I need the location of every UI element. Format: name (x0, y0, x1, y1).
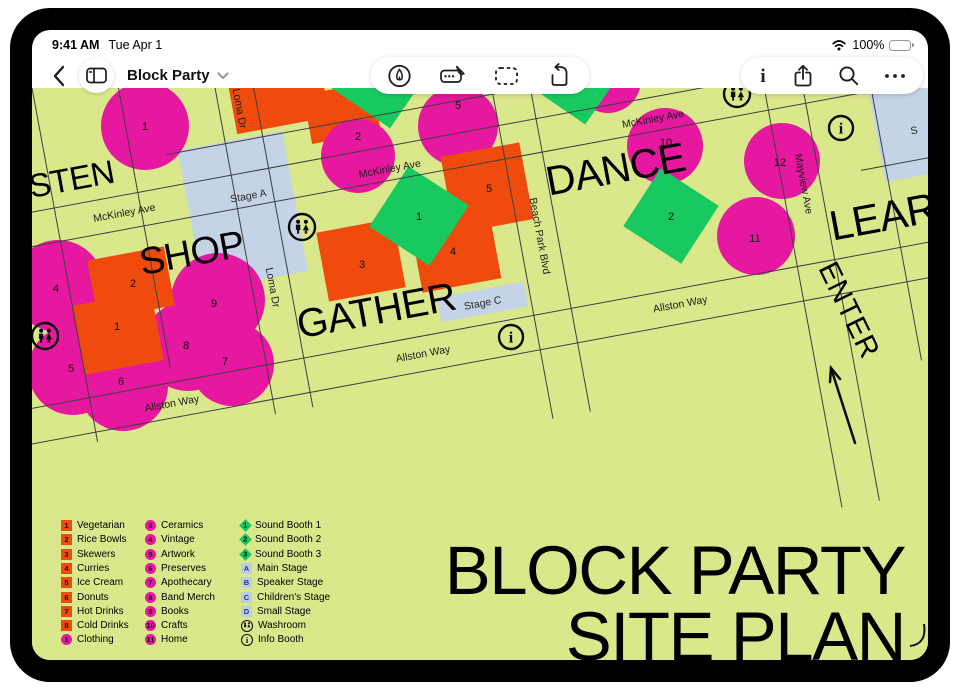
screen: 9:41 AM Tue Apr 1 100% (32, 30, 928, 660)
legend-row: 1Vegetarian (61, 520, 145, 531)
legend-label: Band Merch (161, 592, 215, 603)
legend-row: CChildren's Stage (241, 591, 330, 602)
legend-label: Info Booth (258, 634, 304, 645)
vendor-number: 11 (749, 233, 760, 245)
map-legend[interactable]: 1Vegetarian 2Rice Bowls 3Skewers 4Currie… (61, 520, 330, 649)
info-booth-icon[interactable] (499, 325, 523, 349)
street-label-allston[interactable]: Allston Way (395, 343, 452, 365)
search-button[interactable] (838, 65, 860, 87)
stage-blocks (178, 88, 928, 364)
legend-label: Sound Booth 2 (255, 534, 321, 545)
vendor-number: 5 (68, 363, 74, 375)
legend-label: Home (161, 634, 188, 645)
more-ellipsis-icon (884, 73, 906, 79)
legend-row: 4Vintage (145, 534, 241, 545)
drawing-tools-pill (371, 57, 590, 94)
toolbar: Block Party (32, 57, 928, 94)
legend-label: Ice Cream (77, 577, 123, 588)
stage-badge: D (241, 606, 252, 617)
legend-label: Skewers (77, 549, 115, 560)
pencil-tool-icon (388, 64, 412, 88)
food-badge: 8 (61, 620, 72, 631)
legend-row: 7Apothecary (145, 577, 241, 588)
legend-row: AMain Stage (241, 563, 330, 574)
zone-label-listen[interactable]: LISTEN (32, 153, 117, 210)
legend-label: Small Stage (257, 606, 311, 617)
handwriting-tool-button[interactable] (439, 64, 467, 88)
legend-row: 6Preserves (145, 563, 241, 574)
food-badge: 5 (61, 577, 72, 588)
legend-row: 3Ceramics (145, 520, 241, 531)
vendor-number: 12 (774, 157, 786, 169)
food-square-1[interactable] (72, 291, 163, 374)
info-booth-icon[interactable] (829, 116, 853, 140)
legend-label: Speaker Stage (257, 577, 323, 588)
legend-row: 1Sound Booth 1 (241, 520, 330, 531)
document-title-menu[interactable]: Block Party (123, 67, 229, 84)
legend-label: Children's Stage (257, 592, 330, 603)
stage-partial-block[interactable] (868, 88, 928, 182)
legend-row: 11Home (145, 634, 241, 645)
market-badge: 9 (145, 606, 156, 617)
food-badge: 2 (61, 534, 72, 545)
more-button[interactable] (884, 73, 906, 79)
legend-label: Washroom (258, 620, 306, 631)
vendor-number: 6 (118, 376, 124, 388)
share-button[interactable] (792, 64, 814, 88)
ipad-device-frame: 9:41 AM Tue Apr 1 100% (10, 8, 950, 682)
actions-pill: i (741, 57, 923, 94)
pencil-tool-button[interactable] (388, 64, 412, 88)
market-badge: 3 (145, 520, 156, 531)
status-date: Tue Apr 1 (108, 38, 162, 52)
info-icon: i (758, 65, 768, 87)
legend-row: 3Sound Booth 3 (241, 549, 330, 560)
food-badge: 6 (61, 592, 72, 603)
vendor-number: 3 (359, 259, 365, 271)
enter-arrow[interactable] (830, 368, 855, 443)
vendor-number: 4 (450, 246, 456, 258)
back-button[interactable] (46, 58, 70, 94)
legend-row: 10Crafts (145, 620, 241, 631)
market-badge: 1 (61, 634, 72, 645)
sound-booth-badge: 2 (239, 534, 252, 547)
vendor-number: 1 (142, 121, 148, 133)
page-curl-mark (910, 624, 924, 646)
battery-icon (889, 40, 914, 51)
poster-title[interactable]: BLOCK PARTY SITE PLAN (445, 538, 905, 660)
info-button[interactable]: i (758, 65, 768, 87)
market-badge: 5 (145, 549, 156, 560)
legend-label: Rice Bowls (77, 534, 126, 545)
wifi-icon (831, 39, 847, 51)
vendor-number: 9 (211, 298, 217, 310)
stage-badge: A (241, 563, 252, 574)
market-badge: 10 (145, 620, 156, 631)
rotate-tool-icon (547, 63, 573, 89)
legend-label: Main Stage (257, 563, 308, 574)
legend-label: Ceramics (161, 520, 203, 531)
market-badge: 7 (145, 577, 156, 588)
legend-row: 2Sound Booth 2 (241, 534, 330, 545)
legend-row: 3Skewers (61, 549, 145, 560)
legend-row: iInfo Booth (241, 634, 330, 645)
sound-booth-badge: 3 (239, 548, 252, 561)
legend-label: Cold Drinks (77, 620, 129, 631)
poster-title-line2: SITE PLAN (445, 604, 905, 660)
legend-column-market: 3Ceramics 4Vintage 5Artwork 6Preserves 7… (145, 520, 241, 649)
selection-tool-button[interactable] (494, 65, 520, 87)
stage-badge: B (241, 577, 252, 588)
vendor-number: 5 (455, 100, 461, 112)
market-badge: 4 (145, 534, 156, 545)
market-badge: 11 (145, 634, 156, 645)
legend-column-stages: 1Sound Booth 1 2Sound Booth 2 3Sound Boo… (241, 520, 330, 649)
legend-label: Sound Booth 1 (255, 520, 321, 531)
vendor-number: 1 (114, 321, 120, 333)
sound-booth-badge: 1 (239, 519, 252, 532)
legend-label: Clothing (77, 634, 114, 645)
legend-row: 6Donuts (61, 591, 145, 602)
vendor-number: 10 (660, 137, 672, 149)
vendor-number: 2 (668, 211, 674, 223)
legend-row: BSpeaker Stage (241, 577, 330, 588)
legend-column-food: 1Vegetarian 2Rice Bowls 3Skewers 4Currie… (61, 520, 145, 649)
legend-row: DSmall Stage (241, 606, 330, 617)
market-badge: 8 (145, 592, 156, 603)
share-icon (792, 64, 814, 88)
battery-percent: 100% (852, 38, 884, 52)
vendor-number: 2 (355, 131, 361, 143)
legend-label: Apothecary (161, 577, 212, 588)
svg-text:i: i (760, 66, 765, 87)
vendor-number: 1 (416, 211, 422, 223)
status-time: 9:41 AM (52, 38, 99, 52)
legend-row: 8Cold Drinks (61, 620, 145, 631)
legend-row: 9Books (145, 606, 241, 617)
poster-title-line1: BLOCK PARTY (445, 538, 905, 604)
zone-label-learn[interactable]: LEARN (826, 178, 928, 249)
legend-label: Hot Drinks (77, 606, 124, 617)
washroom-badge-icon (241, 620, 253, 632)
chevron-down-icon (217, 72, 229, 80)
rotate-tool-button[interactable] (547, 63, 573, 89)
legend-label: Vegetarian (77, 520, 125, 531)
freeform-canvas[interactable]: i (32, 88, 928, 660)
food-badge: 4 (61, 563, 72, 574)
legend-label: Books (161, 606, 189, 617)
vendor-number: 7 (222, 356, 228, 368)
legend-row: 8Band Merch (145, 591, 241, 602)
legend-label: Crafts (161, 620, 188, 631)
legend-label: Curries (77, 563, 109, 574)
sidebar-icon (86, 67, 107, 84)
legend-label: Vintage (161, 534, 195, 545)
legend-label: Artwork (161, 549, 195, 560)
legend-row: 5Artwork (145, 549, 241, 560)
stage-badge: C (241, 592, 252, 603)
legend-label: Sound Booth 3 (255, 549, 321, 560)
legend-row: 2Rice Bowls (61, 534, 145, 545)
food-badge: 7 (61, 606, 72, 617)
legend-row: 7Hot Drinks (61, 606, 145, 617)
food-badge: 3 (61, 549, 72, 560)
document-title: Block Party (127, 67, 210, 84)
legend-row: 1Clothing (61, 634, 145, 645)
legend-label: Donuts (77, 592, 109, 603)
status-bar: 9:41 AM Tue Apr 1 100% (32, 38, 928, 54)
food-badge: 1 (61, 520, 72, 531)
search-icon (838, 65, 860, 87)
street-label-mckinley[interactable]: McKinley Ave (92, 202, 156, 225)
market-badge: 6 (145, 563, 156, 574)
legend-row: 5Ice Cream (61, 577, 145, 588)
street-label-allston[interactable]: Allston Way (652, 293, 709, 315)
legend-row: 4Curries (61, 563, 145, 574)
street-label-beach[interactable]: Beach Park Blvd (526, 197, 552, 276)
sidebar-button[interactable] (79, 58, 114, 93)
vendor-number: 2 (130, 278, 136, 290)
legend-label: Preserves (161, 563, 206, 574)
zone-label-enter[interactable]: ENTER (812, 257, 886, 364)
selection-tool-icon (494, 65, 520, 87)
legend-row: Washroom (241, 620, 330, 631)
vendor-number: 4 (53, 283, 59, 295)
handwriting-tool-icon (439, 64, 467, 88)
vendor-number: 8 (183, 340, 189, 352)
info-badge-icon: i (241, 634, 253, 646)
vendor-number: 5 (486, 183, 492, 195)
back-chevron-icon (52, 65, 65, 87)
